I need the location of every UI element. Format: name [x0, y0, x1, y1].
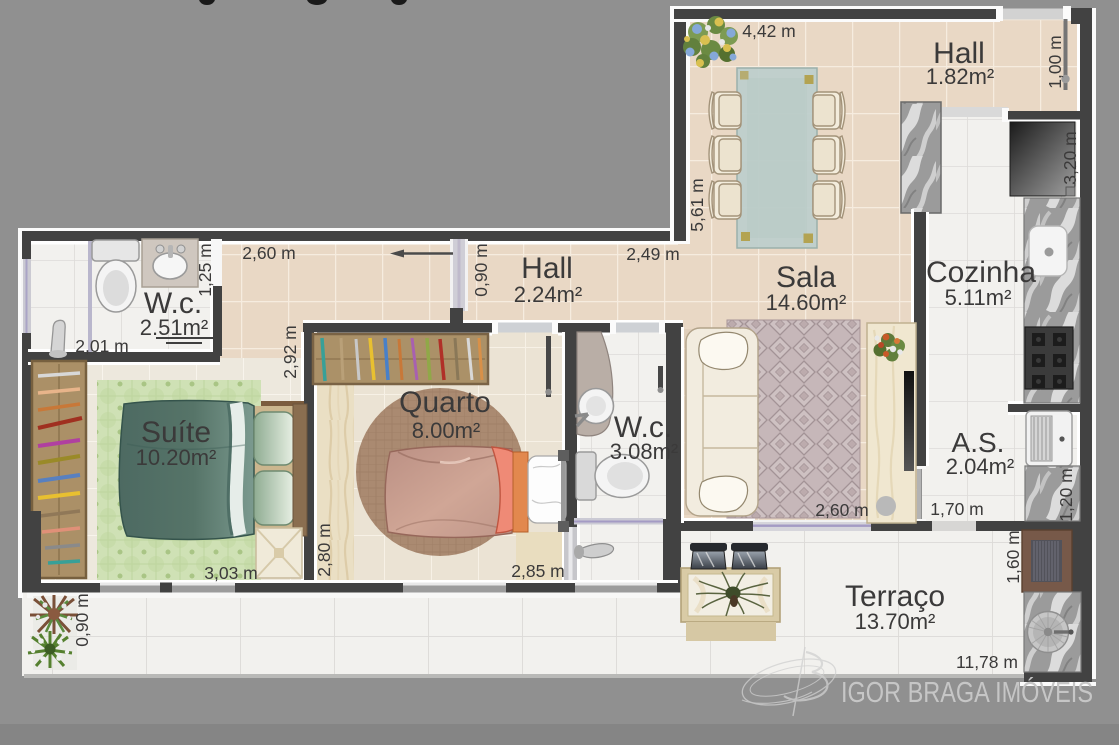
svg-text:1,60 m: 1,60 m — [1003, 530, 1023, 584]
svg-text:1,00 m: 1,00 m — [1045, 35, 1065, 89]
svg-text:2.04m²: 2.04m² — [946, 454, 1014, 479]
svg-text:Hall: Hall — [521, 252, 573, 285]
svg-text:0,90 m: 0,90 m — [72, 593, 92, 647]
svg-text:2.24m²: 2.24m² — [514, 282, 582, 307]
svg-text:4,42 m: 4,42 m — [742, 21, 796, 41]
svg-text:2,01 m: 2,01 m — [75, 336, 129, 356]
svg-text:13.70m²: 13.70m² — [855, 609, 936, 634]
svg-text:3,03 m: 3,03 m — [204, 563, 258, 583]
svg-text:2,85 m: 2,85 m — [511, 561, 565, 581]
svg-text:IGOR BRAGA IMÓVEIS: IGOR BRAGA IMÓVEIS — [841, 676, 1093, 709]
svg-text:2,49 m: 2,49 m — [626, 244, 680, 264]
svg-text:10.20m²: 10.20m² — [136, 445, 217, 470]
svg-text:14.60m²: 14.60m² — [766, 290, 847, 315]
svg-text:2.51m²: 2.51m² — [140, 315, 208, 340]
svg-text:5,61 m: 5,61 m — [687, 178, 707, 232]
svg-text:3.08m²: 3.08m² — [610, 439, 678, 464]
svg-text:8.00m²: 8.00m² — [412, 418, 480, 443]
svg-text:Quarto: Quarto — [399, 386, 491, 419]
svg-text:0,90 m: 0,90 m — [471, 243, 491, 297]
svg-text:2,60 m: 2,60 m — [242, 243, 296, 263]
svg-text:1.82m²: 1.82m² — [926, 64, 994, 89]
svg-text:3,20 m: 3,20 m — [1060, 131, 1080, 185]
svg-text:5.11m²: 5.11m² — [945, 285, 1012, 310]
svg-text:1,20 m: 1,20 m — [1056, 468, 1076, 522]
svg-text:11,78 m: 11,78 m — [956, 652, 1018, 672]
svg-text:1,70 m: 1,70 m — [930, 499, 984, 519]
svg-text:2,92 m: 2,92 m — [280, 325, 300, 379]
svg-text:2,80 m: 2,80 m — [314, 523, 334, 577]
svg-text:2,60 m: 2,60 m — [815, 500, 869, 520]
